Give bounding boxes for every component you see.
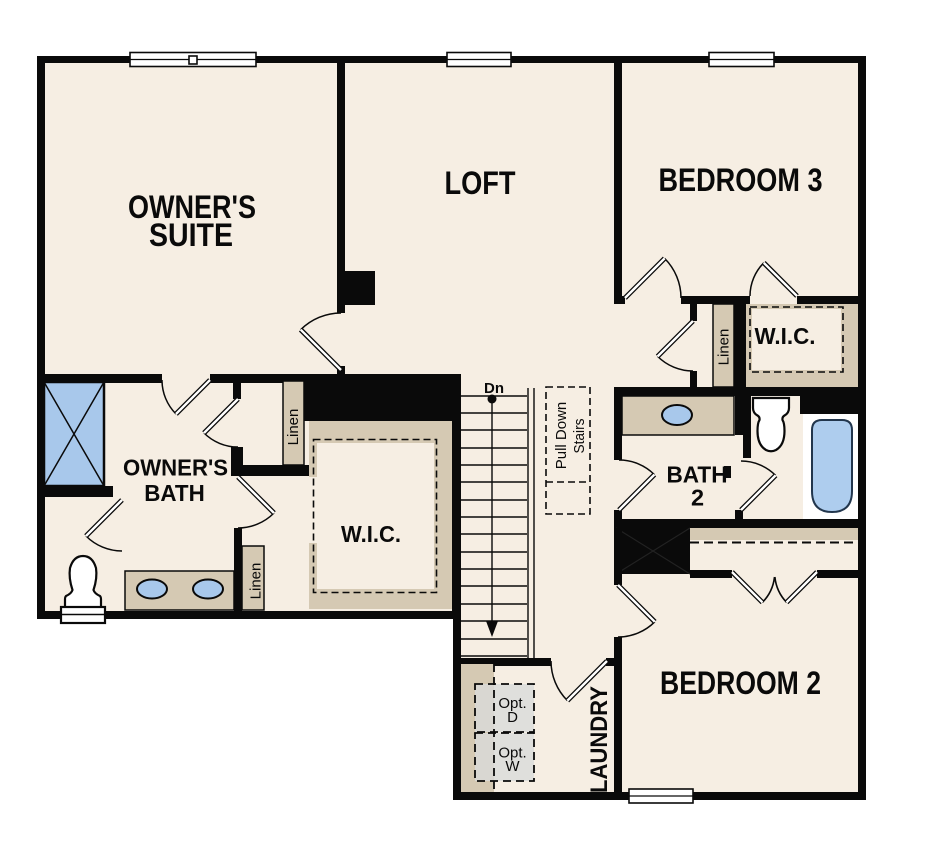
svg-text:SUITE: SUITE (149, 217, 233, 253)
svg-text:LOFT: LOFT (445, 165, 516, 201)
svg-text:BEDROOM 2: BEDROOM 2 (660, 665, 821, 701)
svg-text:W: W (505, 758, 520, 775)
svg-text:BEDROOM 3: BEDROOM 3 (659, 162, 823, 198)
svg-text:Linen: Linen (716, 329, 733, 366)
svg-text:D: D (507, 709, 518, 726)
svg-text:Pull Down: Pull Down (553, 402, 570, 470)
svg-text:Linen: Linen (248, 563, 265, 600)
svg-text:LAUNDRY: LAUNDRY (586, 686, 613, 793)
svg-text:W.I.C.: W.I.C. (341, 521, 401, 547)
svg-text:OWNER'S: OWNER'S (123, 455, 228, 481)
svg-text:Dn: Dn (484, 380, 504, 397)
svg-text:2: 2 (691, 485, 704, 511)
svg-text:BATH: BATH (144, 480, 205, 506)
svg-text:Stairs: Stairs (571, 419, 588, 454)
svg-text:W.I.C.: W.I.C. (755, 323, 816, 349)
svg-text:Linen: Linen (285, 409, 302, 446)
